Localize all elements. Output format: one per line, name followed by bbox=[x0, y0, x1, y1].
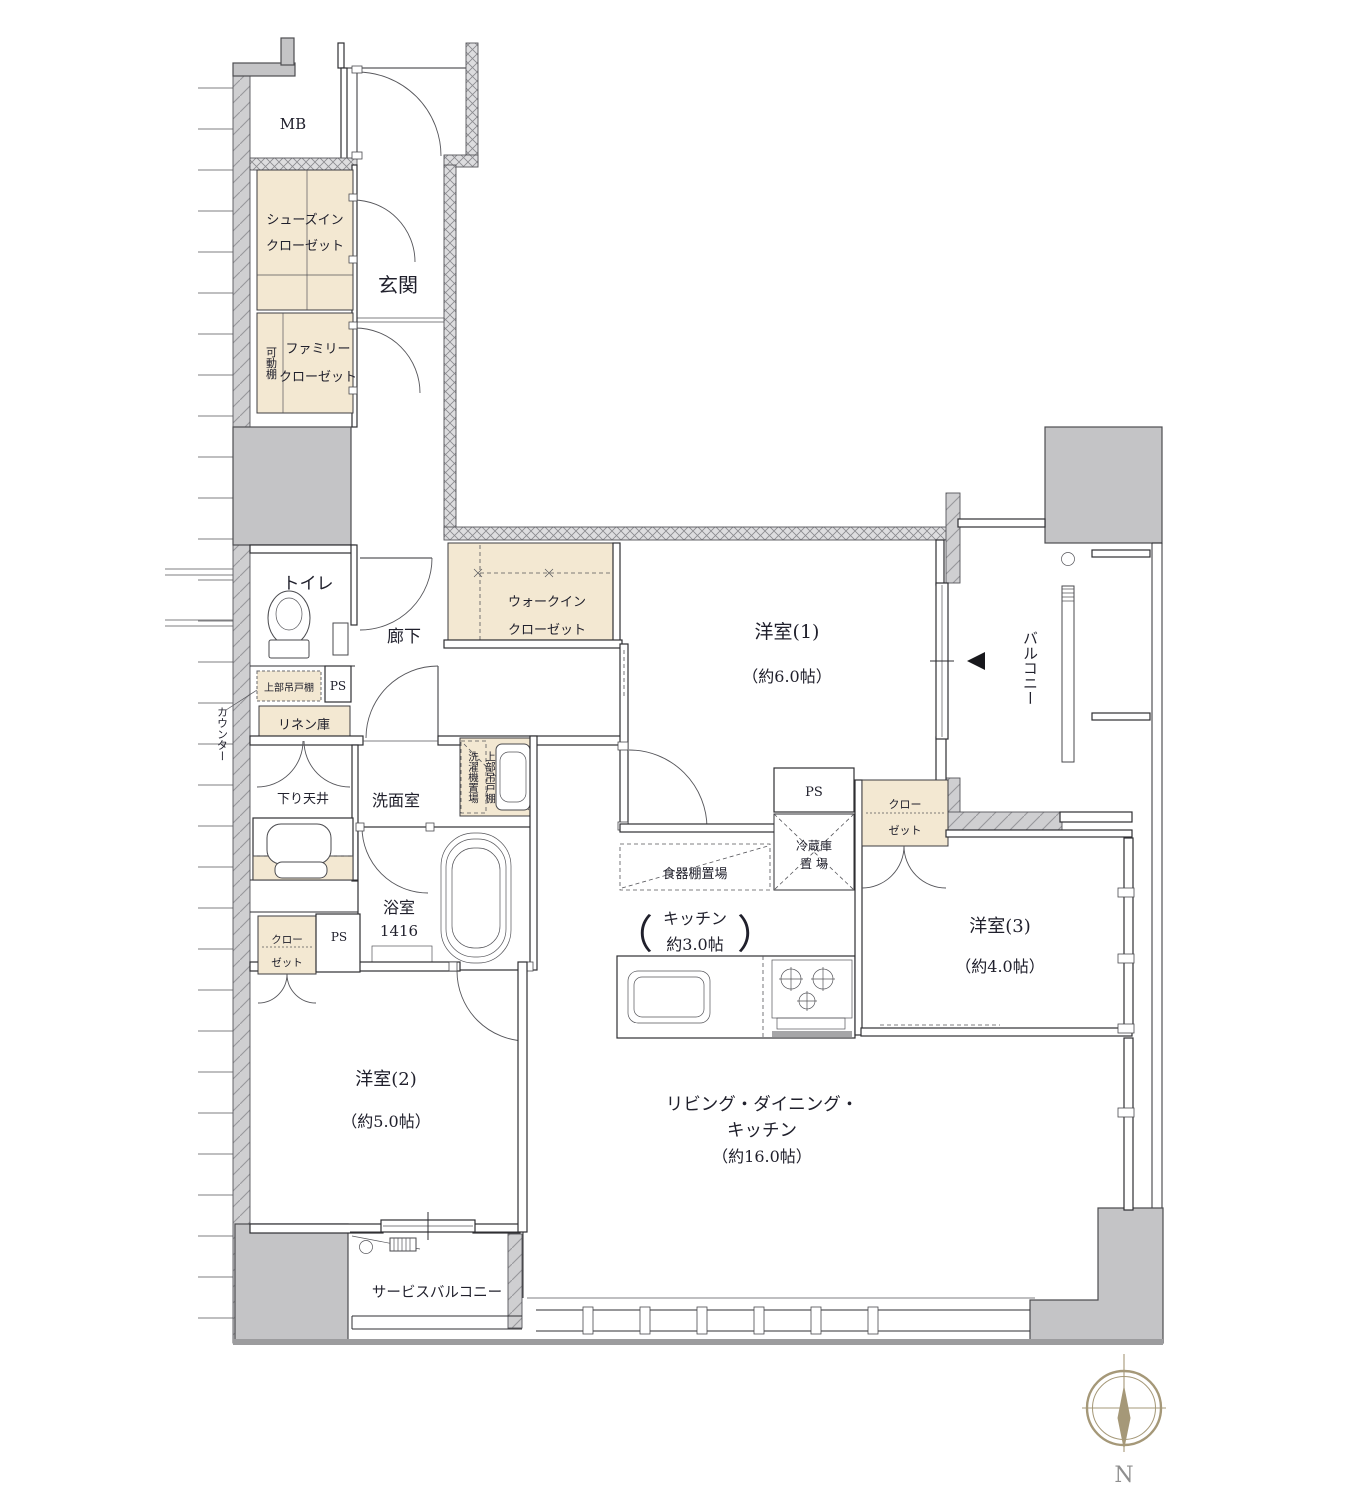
balcony-label: バルコニー bbox=[1021, 631, 1039, 706]
bedroom3-size-label: （約4.0帖） bbox=[955, 957, 1044, 976]
bedroom1-label: 洋室(1) bbox=[755, 621, 820, 643]
bathroom-size-label: 1416 bbox=[380, 922, 418, 940]
hallway-label: 廊下 bbox=[387, 627, 421, 647]
wic-label-1: ウォークイン bbox=[508, 595, 586, 610]
closet3-label-1: クロー bbox=[889, 798, 922, 811]
bedroom2-label: 洋室(2) bbox=[355, 1069, 417, 1090]
shoe-closet-label-2: クローゼット bbox=[266, 239, 344, 254]
linen-label: リネン庫 bbox=[278, 718, 330, 733]
bedroom-3: クロー ゼット 洋室(3) （約4.0帖） bbox=[855, 780, 1134, 1210]
family-closet-label-2: クローゼット bbox=[279, 370, 357, 385]
ps-toilet-label: PS bbox=[330, 679, 346, 693]
washer-place-label: 洗濯機置場 bbox=[467, 751, 479, 804]
compass-north-label: N bbox=[1114, 1463, 1133, 1488]
kitchen: PS 冷蔵庫 置 場 食器棚置場 （ ） キッチン 約3.0帖 bbox=[530, 736, 855, 1038]
washroom: 洗面室 洗濯機置場 上部吊戸棚 bbox=[372, 738, 532, 816]
movable-shelf-label: 可動棚 bbox=[265, 347, 278, 381]
closet2-label-2: ゼット bbox=[271, 957, 303, 969]
bedroom1-size-label: （約6.0帖） bbox=[742, 667, 831, 686]
fridge-label-1: 冷蔵庫 bbox=[796, 839, 832, 853]
cupboard-label: 食器棚置場 bbox=[662, 866, 727, 882]
service-balcony: サービスバルコニー bbox=[350, 1232, 523, 1329]
kitchen-paren-close: ） bbox=[737, 912, 777, 958]
ps-kitchen-label: PS bbox=[805, 785, 823, 800]
wic-label-2: クローゼット bbox=[508, 623, 586, 638]
kitchen-size-label: 約3.0帖 bbox=[666, 935, 723, 954]
counter-label: カウンター bbox=[216, 706, 229, 761]
closet2-label-1: クロー bbox=[271, 934, 303, 946]
shoe-closet-label-1: シューズイン bbox=[266, 212, 343, 228]
corridor-ticks bbox=[165, 88, 233, 1318]
ps-bedroom2-label: PS bbox=[331, 930, 347, 944]
bedroom2-size-label: （約5.0帖） bbox=[341, 1112, 430, 1131]
closet3-label-2: ゼット bbox=[889, 824, 922, 837]
ldk-label-1: リビング・ダイニング・ bbox=[666, 1095, 859, 1115]
walk-in-closet: ウォークイン クローゼット bbox=[444, 543, 622, 648]
upper-cabinet-toilet-label: 上部吊戸棚 bbox=[264, 681, 314, 694]
bedroom3-label: 洋室(3) bbox=[969, 916, 1031, 937]
upper-cabinet-washer-label: 上部吊戸棚 bbox=[484, 751, 496, 804]
ldk-size-label: （約16.0帖） bbox=[712, 1147, 812, 1166]
balcony: バルコニー bbox=[1021, 550, 1150, 762]
floorplan-canvas: 玄関 MB シューズイン クローゼット 可動棚 ファミリー クローゼット トイレ… bbox=[0, 0, 1366, 1488]
service-balcony-label: サービスバルコニー bbox=[372, 1284, 502, 1301]
family-closet: 可動棚 ファミリー クローゼット bbox=[257, 313, 420, 413]
washroom-label: 洗面室 bbox=[372, 791, 420, 810]
ldk-label-2: キッチン bbox=[727, 1121, 797, 1141]
kitchen-label: キッチン bbox=[663, 909, 727, 928]
kitchen-paren-open: （ bbox=[613, 912, 653, 958]
toilet-label: トイレ bbox=[283, 574, 334, 594]
bathroom-label: 浴室 bbox=[383, 898, 415, 917]
ldk: リビング・ダイニング・ キッチン （約16.0帖） bbox=[523, 1095, 1035, 1334]
lowered-ceiling-label: 下り天井 bbox=[277, 792, 329, 807]
floorplan-page: 玄関 MB シューズイン クローゼット 可動棚 ファミリー クローゼット トイレ… bbox=[0, 0, 1366, 1488]
bathroom: 浴室 1416 bbox=[356, 823, 533, 970]
entrance-label: 玄関 bbox=[378, 273, 418, 297]
mb-label: MB bbox=[280, 115, 306, 133]
fridge-label-2: 置 場 bbox=[800, 857, 828, 871]
compass-icon: N bbox=[1082, 1354, 1166, 1488]
window-direction-marker bbox=[967, 652, 985, 670]
family-closet-label-1: ファミリー bbox=[285, 342, 350, 357]
